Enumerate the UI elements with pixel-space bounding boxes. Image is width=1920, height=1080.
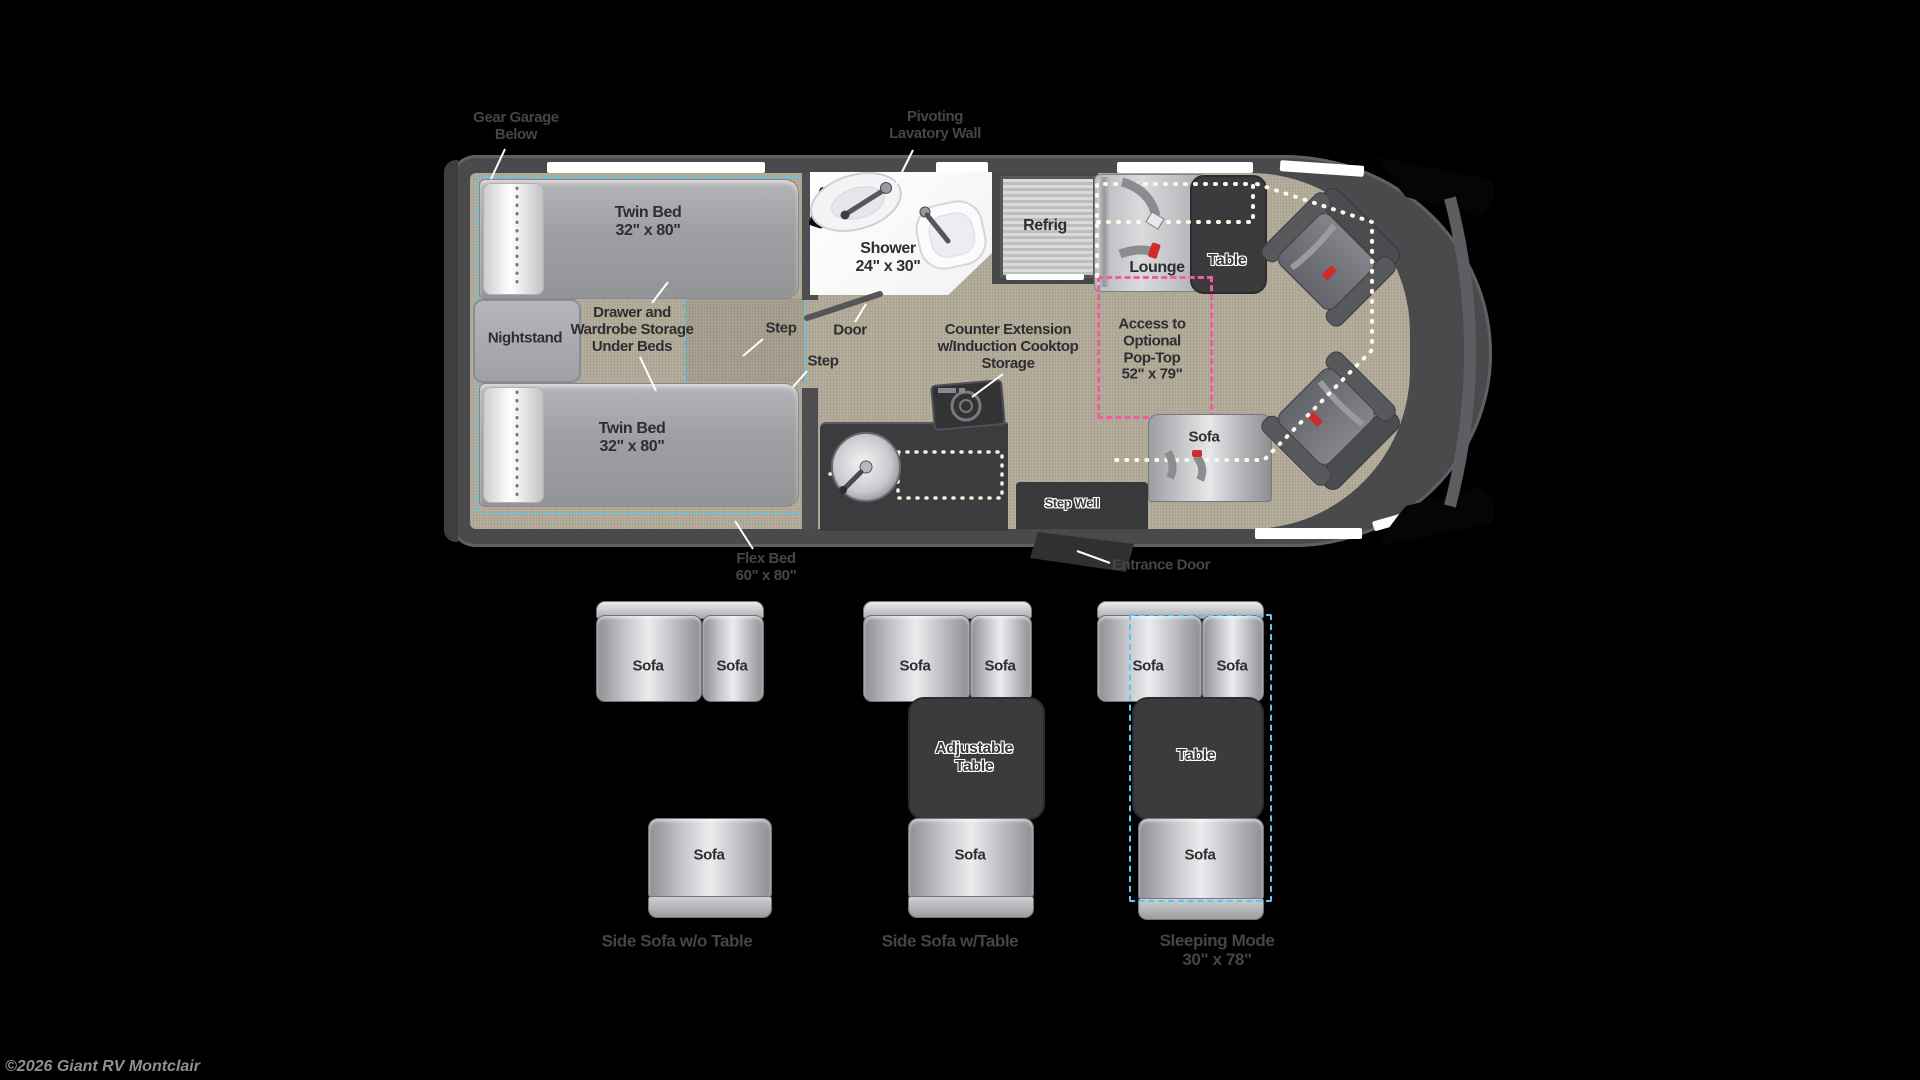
step-upper-label: Step [766, 321, 797, 338]
sofa-label: Sofa [985, 659, 1016, 676]
sleeping-area-outline [1129, 614, 1272, 902]
flex-bed-label: Flex Bed 60" x 80" [736, 551, 797, 585]
step-lower-label: Step [808, 354, 839, 371]
copyright-watermark: ©2026 Giant RV Montclair [5, 1058, 200, 1076]
sofa-label: Sofa [717, 659, 748, 676]
kitchen-sink [832, 433, 900, 501]
config1-title: Side Sofa w/o Table [602, 931, 753, 950]
main-floorplan: Twin Bed 32" x 80" Nightstand Drawer and… [0, 0, 1920, 600]
config2-title: Side Sofa w/Table [882, 931, 1018, 950]
gear-garage-label: Gear Garage Below [473, 110, 559, 144]
nose-windshield-graphics [1378, 157, 1494, 546]
sofa-base-band [648, 896, 772, 918]
sofa-label: Sofa [900, 659, 931, 676]
cab-chair-passenger [1259, 181, 1407, 329]
sofa-base-band [908, 896, 1034, 918]
sofa-label: Sofa [694, 848, 725, 865]
seatbelt-glyphs [1120, 182, 1202, 480]
sofa-label: Sofa [633, 659, 664, 676]
floorplan-overlay-graphics [0, 0, 1920, 600]
rv-floorplan-diagram: Twin Bed 32" x 80" Nightstand Drawer and… [0, 0, 1920, 1080]
pocket-door-line [807, 294, 880, 318]
door-label: Door [833, 323, 866, 340]
pivoting-lavatory-label: Pivoting Lavatory Wall [889, 109, 981, 143]
adjustable-table-label: Adjustable Table [935, 740, 1013, 776]
cab-chair-driver [1259, 349, 1407, 497]
entrance-door-label: Entrance Door [1112, 558, 1210, 575]
sofa-label: Sofa [955, 848, 986, 865]
cooktop-detail [938, 388, 980, 420]
config3-title: Sleeping Mode 30" x 78" [1160, 931, 1275, 969]
counter-extension-label: Counter Extension w/Induction Cooktop St… [938, 322, 1079, 372]
